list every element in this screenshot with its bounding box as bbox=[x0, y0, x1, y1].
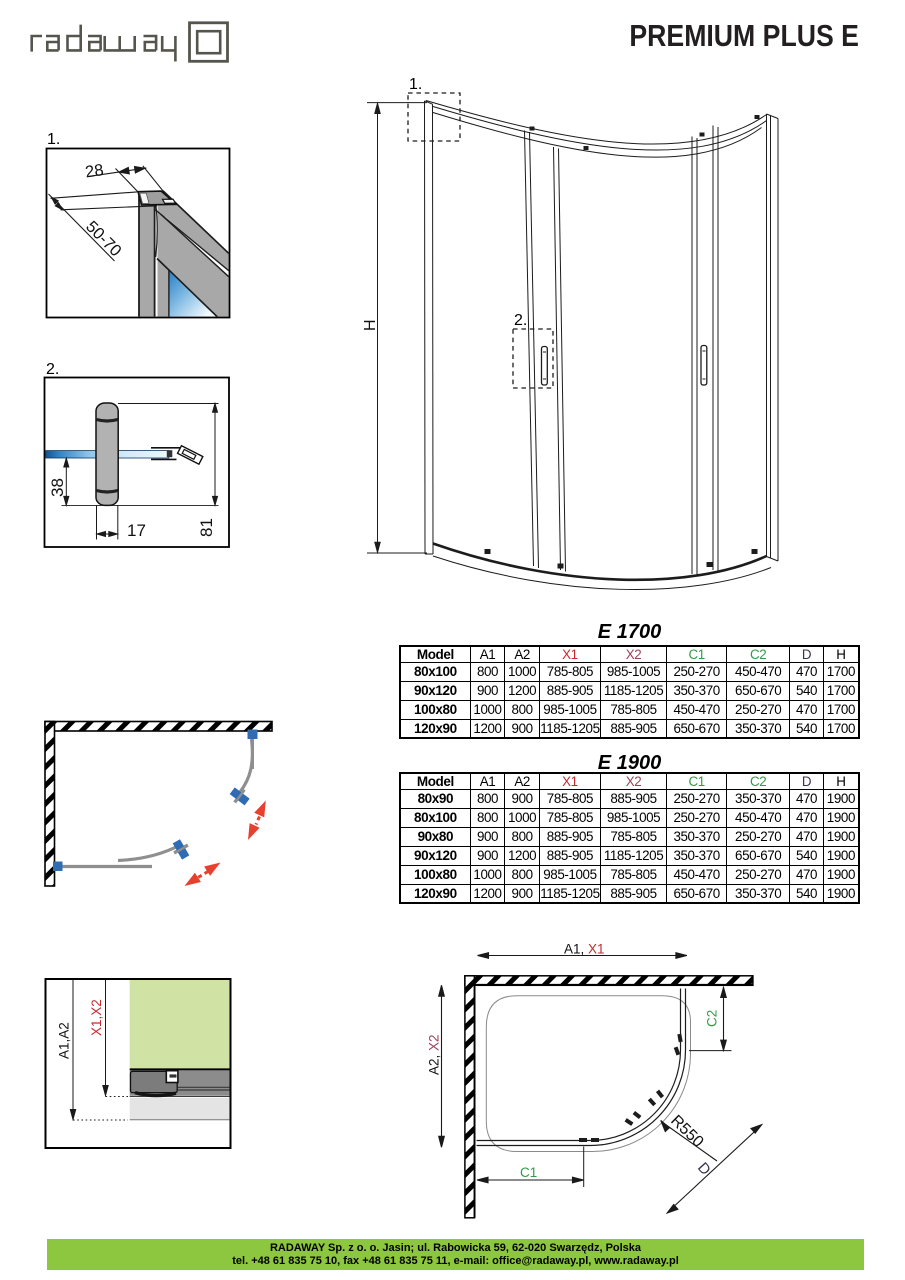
svg-text:2.: 2. bbox=[46, 361, 59, 378]
svg-text:1.: 1. bbox=[409, 76, 422, 93]
svg-text:2.: 2. bbox=[514, 312, 527, 329]
svg-text:C1: C1 bbox=[520, 1165, 537, 1180]
svg-text:28: 28 bbox=[84, 161, 105, 181]
svg-text:A1,A2: A1,A2 bbox=[57, 1022, 72, 1059]
svg-text:A1, X1: A1, X1 bbox=[564, 942, 605, 957]
svg-text:A2, X2: A2, X2 bbox=[427, 1034, 442, 1075]
svg-text:38: 38 bbox=[48, 478, 67, 497]
svg-text:17: 17 bbox=[127, 521, 146, 540]
svg-text:X1,X2: X1,X2 bbox=[89, 999, 104, 1036]
svg-text:D: D bbox=[694, 1159, 714, 1179]
svg-text:C2: C2 bbox=[705, 1010, 720, 1027]
svg-text:81: 81 bbox=[197, 518, 216, 537]
svg-text:H: H bbox=[362, 319, 379, 331]
svg-text:R550: R550 bbox=[667, 1112, 706, 1151]
svg-text:1.: 1. bbox=[47, 131, 60, 148]
